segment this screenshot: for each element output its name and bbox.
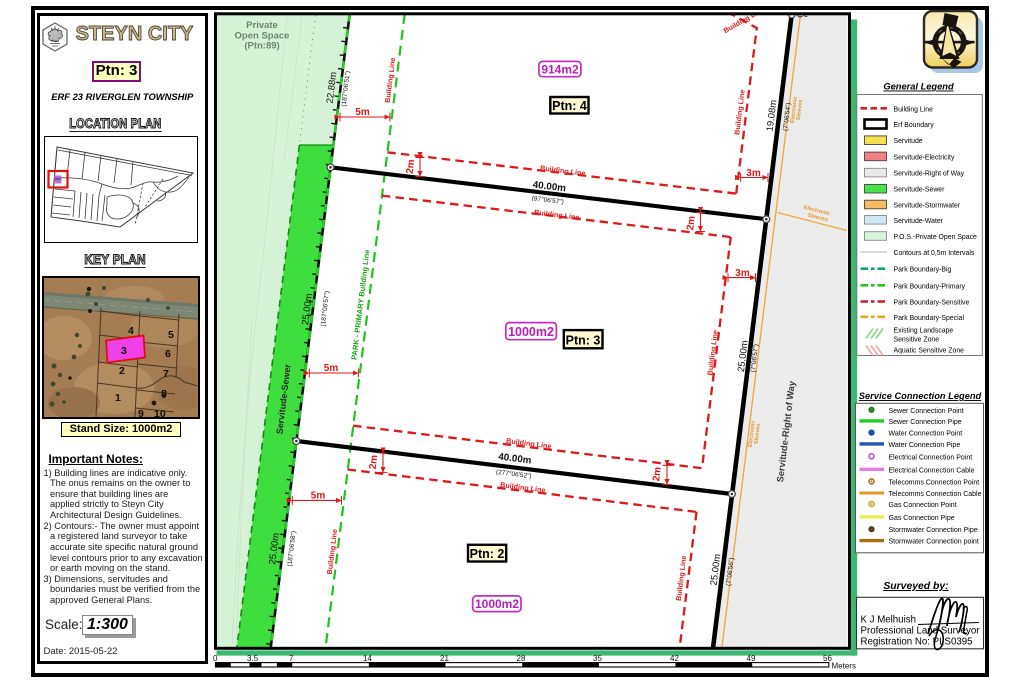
svg-text:Building Line: Building Line bbox=[540, 163, 586, 177]
svg-text:Existing Landscape: Existing Landscape bbox=[894, 328, 954, 335]
svg-text:Contours at 0,5m Intervals: Contours at 0,5m Intervals bbox=[894, 250, 975, 257]
svg-text:Building Line: Building Line bbox=[506, 436, 552, 450]
svg-text:14: 14 bbox=[363, 654, 372, 663]
svg-text:2m: 2m bbox=[651, 466, 664, 482]
svg-text:(187°06'58"): (187°06'58") bbox=[285, 531, 297, 567]
svg-text:28: 28 bbox=[517, 654, 526, 663]
svg-text:Stormwater Connection point: Stormwater Connection point bbox=[889, 539, 979, 546]
svg-text:Ptn: 3: Ptn: 3 bbox=[566, 333, 601, 347]
svg-text:Building Line: Building Line bbox=[500, 480, 546, 494]
svg-text:3.5: 3.5 bbox=[247, 654, 259, 663]
svg-text:Servitude-Electricity: Servitude-Electricity bbox=[894, 154, 955, 161]
svg-text:2m: 2m bbox=[405, 159, 418, 175]
svg-text:Servitude-Water: Servitude-Water bbox=[894, 218, 944, 225]
svg-text:Surveyed by:: Surveyed by: bbox=[883, 581, 948, 592]
svg-text:(Ptn:89): (Ptn:89) bbox=[244, 41, 279, 52]
svg-text:7: 7 bbox=[289, 654, 294, 663]
svg-text:5m: 5m bbox=[355, 107, 370, 118]
svg-text:Ptn: 4: Ptn: 4 bbox=[552, 99, 587, 113]
svg-text:Stormwater Connection Pipe: Stormwater Connection Pipe bbox=[889, 527, 978, 534]
svg-text:21: 21 bbox=[440, 654, 449, 663]
svg-text:Meters: Meters bbox=[832, 662, 856, 671]
svg-text:5m: 5m bbox=[324, 363, 339, 374]
svg-text:Building Line: Building Line bbox=[732, 89, 746, 135]
svg-text:Sensitive Zone: Sensitive Zone bbox=[894, 337, 940, 344]
svg-text:3m: 3m bbox=[746, 168, 761, 179]
svg-text:Water Connection Point: Water Connection Point bbox=[889, 431, 963, 438]
svg-text:Park Boundary-Big: Park Boundary-Big bbox=[894, 267, 952, 274]
svg-text:Servitude-Sewer: Servitude-Sewer bbox=[894, 187, 946, 194]
svg-text:3m: 3m bbox=[735, 268, 750, 279]
svg-text:Aquatic Sensitive Zone: Aquatic Sensitive Zone bbox=[894, 348, 965, 355]
svg-text:Servitude-Stormwater: Servitude-Stormwater bbox=[894, 203, 961, 210]
svg-text:35: 35 bbox=[593, 654, 602, 663]
svg-text:Building Line: Building Line bbox=[325, 529, 339, 575]
svg-text:Service Connection Legend: Service Connection Legend bbox=[859, 391, 982, 401]
svg-text:42: 42 bbox=[670, 654, 679, 663]
svg-text:Erf Boundary: Erf Boundary bbox=[894, 122, 935, 129]
svg-text:Telecomms Connection Cable: Telecomms Connection Cable bbox=[889, 491, 982, 498]
svg-text:Sewer Connection Point: Sewer Connection Point bbox=[889, 408, 964, 415]
svg-text:Water Connection Pipe: Water Connection Pipe bbox=[889, 442, 961, 449]
svg-text:Electrical Connection Point: Electrical Connection Point bbox=[889, 454, 973, 461]
svg-text:1000m2: 1000m2 bbox=[508, 325, 554, 339]
svg-text:Registration No: PLS0395: Registration No: PLS0395 bbox=[861, 637, 973, 648]
svg-text:Park Boundary-Primary: Park Boundary-Primary bbox=[894, 283, 966, 290]
svg-text:1000m2: 1000m2 bbox=[475, 597, 519, 611]
svg-text:Gas Connection Pipe: Gas Connection Pipe bbox=[889, 515, 955, 522]
svg-text:General Legend: General Legend bbox=[883, 82, 954, 92]
svg-text:Servitude-Right of Way: Servitude-Right of Way bbox=[894, 171, 965, 178]
svg-text:Gas Connection Point: Gas Connection Point bbox=[889, 502, 957, 509]
svg-text:Private: Private bbox=[246, 20, 278, 31]
svg-text:(187°06'57"): (187°06'57") bbox=[319, 291, 331, 327]
svg-text:5m: 5m bbox=[311, 491, 326, 502]
svg-text:2m: 2m bbox=[368, 454, 381, 470]
svg-text:Building Line: Building Line bbox=[534, 208, 580, 222]
svg-text:Electrical Connection Cable: Electrical Connection Cable bbox=[889, 467, 975, 474]
svg-text:Telecomms Connection Point: Telecomms Connection Point bbox=[889, 479, 980, 486]
svg-text:Servitude: Servitude bbox=[894, 138, 923, 145]
svg-text:914m2: 914m2 bbox=[541, 62, 579, 76]
svg-text:Ptn: 2: Ptn: 2 bbox=[470, 547, 505, 561]
svg-text:0: 0 bbox=[213, 654, 218, 663]
svg-text:Sewer Connection Pipe: Sewer Connection Pipe bbox=[889, 419, 962, 426]
svg-text:P.O.S.-Private Open Space: P.O.S.-Private Open Space bbox=[894, 234, 978, 241]
svg-text:2m: 2m bbox=[685, 215, 698, 231]
svg-text:Building Line: Building Line bbox=[894, 106, 934, 113]
svg-text:Park Boundary-Special: Park Boundary-Special bbox=[894, 315, 965, 322]
svg-text:Park Boundary-Sensitive: Park Boundary-Sensitive bbox=[894, 300, 970, 307]
svg-text:K J Melhuish: K J Melhuish bbox=[861, 615, 916, 626]
svg-text:49: 49 bbox=[747, 654, 756, 663]
svg-text:Professional Land Surveyor: Professional Land Surveyor bbox=[861, 626, 981, 637]
svg-text:Building Line: Building Line bbox=[722, 5, 766, 36]
